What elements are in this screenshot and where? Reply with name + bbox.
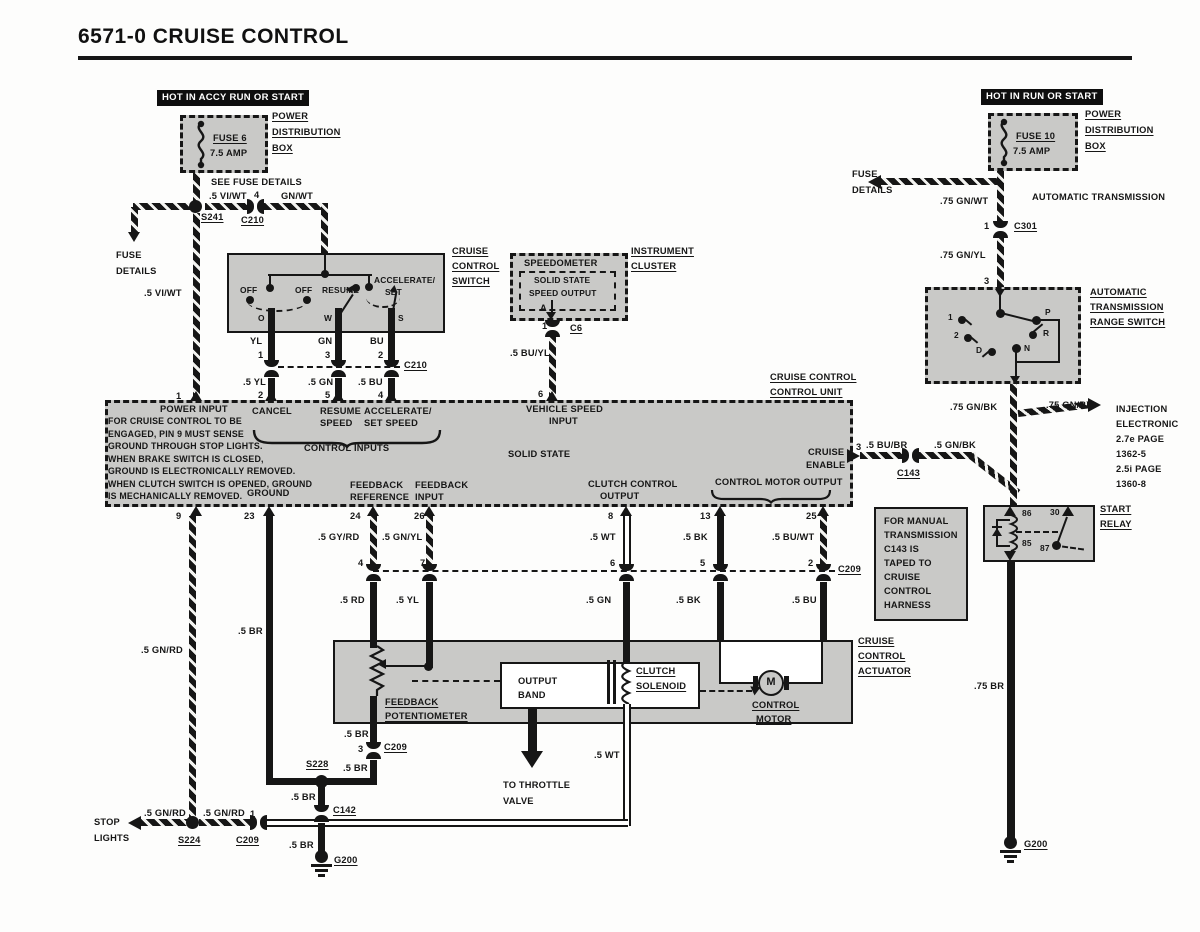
see-fuse-details: SEE FUSE DETAILS [211,177,302,188]
wire-wt-pin8 [623,516,631,566]
cluster-name-2: CLUSTER [631,261,676,272]
pdb-right-3: BOX [1085,141,1106,152]
connector-c210-bu [384,360,399,377]
manual-note-5: CRUISE [884,572,920,583]
wire-ground-pin23 [266,516,273,783]
pin-13: 13 [700,511,711,522]
wiper-dot [424,662,433,671]
wire-label-br3: .5 BR [291,792,316,803]
connector-c142-label: C142 [333,805,356,816]
connector-c209-label: C209 [838,564,861,575]
unit-clutch-out-1: CLUTCH CONTROL [588,479,678,490]
wire-s241-left [133,203,195,210]
range-line-p-right [1038,319,1060,321]
unit-fb-in-2: INPUT [415,492,444,503]
hot-in-run-label: HOT IN RUN OR START [981,89,1103,105]
pin-3-gn: 3 [325,350,330,361]
splice-s241-label: S241 [201,212,224,223]
fuse10-label: FUSE 10 [1016,131,1055,142]
pin-arrow-24 [367,506,379,516]
ground-right-line2 [1004,855,1017,858]
pin-5-c209: 5 [700,558,705,569]
pin-arrow-power-input [190,391,202,401]
connector-c209-4 [366,564,381,581]
pin-2-c209: 2 [808,558,813,569]
injection-3: 2.7e PAGE [1116,434,1164,445]
wire-label-br4: .5 BR [289,840,314,851]
pin-arrow-speed [546,391,558,401]
switch-arc-left [247,290,307,312]
actuator-name-1: CRUISE [858,636,894,647]
pin-arrow-8 [620,506,632,516]
wire-label-gnrd-mid: .5 GN/RD [141,645,183,656]
wire-label-gnyl: .5 GN/YL [382,532,422,543]
pdb-right-2: DISTRIBUTION [1085,125,1154,136]
connector-c6 [545,320,560,337]
pin-6-speed: 6 [538,389,543,400]
wire-fusedetails-down [131,207,138,233]
pin-arrow-cancel [265,391,277,401]
wire-gn-upper [335,308,342,364]
unit-note-4: WHEN BRAKE SWITCH IS CLOSED, [108,455,264,464]
relay-pin-85-arrow [1004,551,1016,561]
unit-name-2: CONTROL UNIT [770,387,842,398]
wire-bubr [860,452,904,459]
switch-terminal-o: O [258,314,265,324]
page-title: 6571-0 CRUISE CONTROL [78,26,349,47]
switch-accel-label-1: ACCELERATE/ [374,276,435,286]
wire-gnwt-h [264,203,328,210]
connector-c209-2 [816,564,831,581]
wire-label-gnrd1: .5 GN/RD [144,808,186,819]
clutch-solenoid-1: CLUTCH [636,666,675,677]
wire-gnrd-pin9 [189,516,196,822]
switch-bus-line [268,274,372,276]
pin-1-yl: 1 [258,350,263,361]
header-rule [78,56,1132,60]
control-motor-symbol: M [758,670,784,696]
pin-7-c209: 7 [420,558,425,569]
unit-note-7: IS MECHANICALLY REMOVED. [108,492,242,501]
switch-name-1: CRUISE [452,246,488,257]
stop-lights-1: STOP [94,817,120,828]
wire-label-gn5: .5 GN [308,377,333,388]
connector-c209a-label: C209 [384,742,407,753]
pin-3-range: 3 [984,276,989,287]
ground-left-line1 [311,864,332,867]
wire-throttle [528,709,537,753]
connector-c301 [993,221,1008,238]
wire-gn-solenoid [623,582,630,662]
pin-arrow-26 [423,506,435,516]
wire-label-gn5: .5 GN [586,595,611,606]
range-exit-arrow [1010,376,1020,384]
wire-gnwt75-upper [997,171,1004,223]
pdb-right-1: POWER [1085,109,1121,120]
connector-c209-bottom [250,815,267,830]
wire-yl-fb [426,582,433,668]
wire-bk-upper [717,516,724,566]
manual-note-7: HARNESS [884,600,931,611]
connector-c209-6 [619,564,634,581]
wire-label-viwt-2: .5 VI/WT [144,288,182,299]
actuator-name-3: ACTUATOR [858,666,911,677]
unit-fb-ref-2: REFERENCE [350,492,409,503]
range-pos-1: 1 [948,313,953,323]
pin-arrow-3 [847,449,860,463]
relay-87-dot [1052,541,1061,550]
unit-cruise-enable-1: CRUISE [808,447,844,458]
fuse6-label: FUSE 6 [213,133,247,144]
connector-c142 [314,805,329,822]
manual-note-6: CONTROL [884,586,931,597]
pin-4b: 4 [378,390,383,401]
pin-arrow-resume [332,391,344,401]
unit-fb-in-1: FEEDBACK [415,480,468,491]
connector-c209b-label: C209 [236,835,259,846]
unit-clutch-out-2: OUTPUT [600,491,639,502]
wire-label-buwt: .5 BU/WT [772,532,814,543]
relay-diode-symbol [992,528,1002,536]
wire-gnyl75 [997,238,1004,287]
actuator-fp-1: FEEDBACK [385,697,438,708]
wire-br-pot-down [370,696,377,744]
range-pos-r: R [1043,329,1049,339]
wire-bu-upper [388,308,395,364]
output-band-2: BAND [518,690,546,701]
fuse10-amp: 7.5 AMP [1013,146,1050,157]
wire-label-gn: GN [318,336,332,347]
wire-bk-lower [717,582,724,642]
relay-t87: 87 [1040,544,1050,554]
injection-1: INJECTION [1116,404,1167,415]
unit-note-3: GROUND THROUGH STOP LIGHTS. [108,442,263,451]
wire-wt-solenoid-v [623,704,631,826]
wire-label-gnwt75: .75 GN/WT [940,196,988,207]
pin-23: 23 [244,511,255,522]
switch-terminal-w: W [324,314,332,324]
splice-s224 [186,816,199,829]
throttle-label-2: VALVE [503,796,534,807]
start-relay-name-2: RELAY [1100,519,1132,530]
manual-note-1: FOR MANUAL [884,516,949,527]
connector-c209-3 [366,742,381,759]
wire-label-br1: .5 BR [344,729,369,740]
ground-left-line3 [318,874,325,877]
wire-viwt-main [193,213,200,400]
pin-1-c301: 1 [984,221,989,232]
wire-label-yl5: .5 YL [243,377,266,388]
pin-6-c209: 6 [610,558,615,569]
fuse6-symbol [194,121,208,167]
relay-t86: 86 [1022,509,1032,519]
range-pos-p: P [1045,308,1051,318]
wire-fuse-details-right [880,178,1000,185]
range-line-right-v [1058,319,1060,363]
unit-control-inputs: CONTROL INPUTS [304,443,389,454]
wire-label-br2: .5 BR [343,763,368,774]
wire-gnwt-v [321,203,328,253]
connector-c143-label: C143 [897,468,920,479]
actuator-fp-2: POTENTIOMETER [385,711,468,722]
pin-25: 25 [806,511,817,522]
pdb-left-2: DISTRIBUTION [272,127,341,138]
mech-link-dash-2 [700,690,752,692]
wire-label-bk2: .5 BK [676,595,701,606]
wiring-diagram-page: 6571-0 CRUISE CONTROL HOT IN ACCY RUN OR… [0,0,1200,932]
stop-lights-2: LIGHTS [94,833,129,844]
pin-arrow-25 [817,506,829,516]
pin-5b: 5 [325,390,330,401]
wire-label-bk1: .5 BK [683,532,708,543]
ground-right-line3 [1007,860,1014,863]
wire-label-yl5: .5 YL [396,595,419,606]
unit-note-1: FOR CRUISE CONTROL TO BE [108,417,242,426]
pin-arrow-9 [190,506,202,516]
connector-c143 [902,448,919,463]
motor-brush-right [784,676,789,690]
unit-solid-state: SOLID STATE [508,449,570,460]
pin-2b: 2 [258,390,263,401]
wire-label-rd: .5 RD [340,595,365,606]
relay-pin-30-arrow [1062,506,1074,516]
wire-label-gyrd: .5 GY/RD [318,532,359,543]
switch-terminal-s: S [398,314,404,324]
unit-note-2: ENGAGED, PIN 9 MUST SENSE [108,430,244,439]
unit-accel-1: ACCELERATE/ [364,406,432,417]
pin-arrow-accel [385,391,397,401]
manual-note-3: C143 IS [884,544,919,555]
wire-label-gnrd2: .5 GN/RD [203,808,245,819]
pin-4-c209: 4 [358,558,363,569]
wire-label-br75: .75 BR [974,681,1004,692]
throttle-label-1: TO THROTTLE [503,780,570,791]
range-line-bottom-h [1017,361,1060,363]
ground-g200-left-label: G200 [334,855,358,866]
unit-ground: GROUND [247,488,290,499]
wire-br75 [1007,562,1015,840]
connector-c210-label: C210 [404,360,427,371]
range-name-1: AUTOMATIC [1090,287,1147,298]
wire-buwt [820,516,827,566]
wire-br-s228-down1 [318,785,325,807]
wire-label-wt-solenoid: .5 WT [594,750,620,761]
cluster-name-1: INSTRUMENT [631,246,694,257]
start-relay-name-1: START [1100,504,1131,515]
connector-c210-gn [331,360,346,377]
injection-2: ELECTRONIC [1116,419,1178,430]
speedometer-label: SPEEDOMETER [524,258,598,269]
wire-gnbk75 [1010,384,1017,505]
arrow-fuse-details-left [128,232,140,242]
fuse-details-left-2: DETAILS [116,266,156,277]
ground-left-line2 [315,869,328,872]
solid-state-label: SOLID STATE [534,276,590,286]
switch-name-3: SWITCH [452,276,490,287]
relay-diode-bottom [996,545,1010,547]
actuator-name-2: CONTROL [858,651,905,662]
control-motor-1: CONTROL [752,700,799,711]
wire-rd [370,582,377,648]
switch-wiper-s-arrow [390,284,399,292]
wire-label-bu: BU [370,336,384,347]
wire-yl-upper [268,308,275,364]
wire-gnyl [426,516,433,566]
ground-g200-right-label: G200 [1024,839,1048,850]
unit-name-1: CRUISE CONTROL [770,372,856,383]
wire-gnrd-to-stop [140,819,188,826]
unit-cruise-enable-2: ENABLE [806,460,845,471]
ground-g200-left-dot [315,850,328,863]
injection-5: 2.5i PAGE [1116,464,1162,475]
connector-c209-dashline [373,570,835,572]
ground-g200-right-dot [1004,836,1017,849]
ground-right-line1 [1000,850,1021,853]
unit-vehicle-speed-2: INPUT [549,416,578,427]
unit-note-5: GROUND IS ELECTRONICALLY REMOVED. [108,467,295,476]
relay-diode-top [996,519,1010,521]
pin-arrow-13 [714,506,726,516]
connector-c210-top [247,199,264,214]
brace-control-motor-output [710,489,832,504]
wire-label-gnwt: GN/WT [281,191,313,202]
range-name-3: RANGE SWITCH [1090,317,1165,328]
fuse-details-left-1: FUSE [116,250,142,261]
relay-dash-link [1016,531,1058,533]
clutch-solenoid-2: SOLENOID [636,681,686,692]
connector-c210-yl [264,360,279,377]
output-band-1: OUTPUT [518,676,557,687]
wire-label-gnbk75-right: .75 GN/BK [1046,400,1093,411]
unit-fb-ref-1: FEEDBACK [350,480,403,491]
injection-4: 1362-5 [1116,449,1146,460]
range-pos-2: 2 [954,331,959,341]
arrow-throttle [521,751,543,768]
wire-label-gnbk: .5 GN/BK [934,440,976,451]
manual-note-4: TAPED TO [884,558,932,569]
automatic-transmission-label: AUTOMATIC TRANSMISSION [1032,192,1165,203]
range-pos-n: N [1024,344,1030,354]
wire-label-viwt-1: .5 VI/WT [209,191,247,202]
wire-label-bu5: .5 BU [358,377,383,388]
wire-label-gnbk75-left: .75 GN/BK [950,402,997,413]
relay-t30: 30 [1050,508,1060,518]
clutch-solenoid-coil [620,660,636,704]
pin-2-bu: 2 [378,350,383,361]
unit-power-input: POWER INPUT [160,404,228,415]
speed-output-label: SPEED OUTPUT [529,289,597,299]
injection-6: 1360-8 [1116,479,1146,490]
pin-8: 8 [608,511,613,522]
wire-s241-right [205,203,247,210]
unit-vehicle-speed-1: VEHICLE SPEED [526,404,603,415]
connector-c6-label: C6 [570,323,582,334]
pin-9: 9 [176,511,181,522]
splice-s224-label: S224 [178,835,201,846]
wiper-arrow [377,659,386,669]
wire-br-s228-down2 [318,823,325,853]
pdb-left-1: POWER [272,111,308,122]
wire-gnrd-to-c209 [199,819,251,826]
wire-bu-lower2 [820,582,827,642]
clutch-plate-2 [613,660,616,704]
wire-label-bu5b: .5 BU [792,595,817,606]
relay-t85: 85 [1022,539,1032,549]
pin-arrow-23 [263,506,275,516]
wiper-line [384,665,426,667]
pin-3-c209b: 3 [358,744,363,755]
pin-24: 24 [350,511,361,522]
connector-c301-label: C301 [1014,221,1037,232]
connector-c210-top-label: C210 [241,215,264,226]
pin-1-power: 1 [176,391,181,402]
cluster-arrow-head [546,312,556,320]
pdb-left-3: BOX [272,143,293,154]
wire-label-wt-pin8: .5 WT [590,532,616,543]
wire-label-br-pin23: .5 BR [238,626,263,637]
switch-name-2: CONTROL [452,261,499,272]
wire-label-gnyl75: .75 GN/YL [940,250,986,261]
wire-gyrd [370,516,377,566]
relay-diode-bar [992,526,1002,528]
unit-resume-1: RESUME [320,406,361,417]
splice-s228-label: S228 [306,759,329,770]
unit-cancel: CANCEL [252,406,292,417]
hot-in-accy-label: HOT IN ACCY RUN OR START [157,90,309,106]
control-motor-2: MOTOR [756,714,791,725]
unit-cmo: CONTROL MOTOR OUTPUT [715,477,843,488]
range-pos-d: D [976,346,982,356]
terminal-a: A [540,303,547,314]
fuse6-amp: 7.5 AMP [210,148,247,159]
wire-label-buyl: .5 BU/YL [510,348,550,359]
wire-label-yl: YL [250,336,262,347]
range-name-2: TRANSMISSION [1090,302,1164,313]
mech-link-dash-1 [412,680,500,682]
feedback-potentiometer-symbol [369,646,385,696]
clutch-plate-1 [607,660,610,704]
manual-note-2: TRANSMISSION [884,530,958,541]
connector-c209-5 [713,564,728,581]
fuse10-symbol [997,119,1011,165]
